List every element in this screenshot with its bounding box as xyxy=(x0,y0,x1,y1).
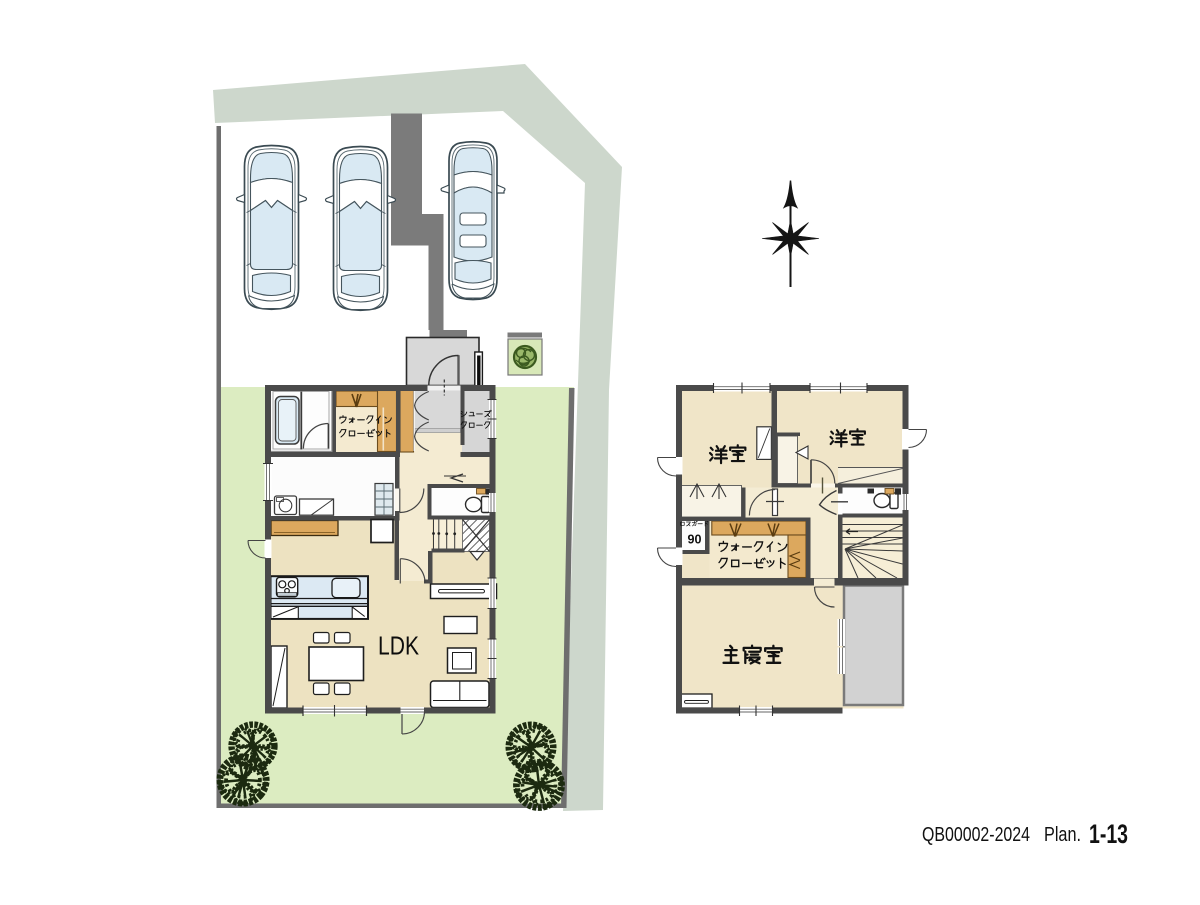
svg-text:QB00002-2024: QB00002-2024 xyxy=(922,824,1030,846)
svg-text:Plan.: Plan. xyxy=(1044,824,1081,846)
svg-text:1-13: 1-13 xyxy=(1089,819,1128,849)
svg-text:LDK: LDK xyxy=(378,631,420,661)
svg-text:90: 90 xyxy=(688,533,702,547)
